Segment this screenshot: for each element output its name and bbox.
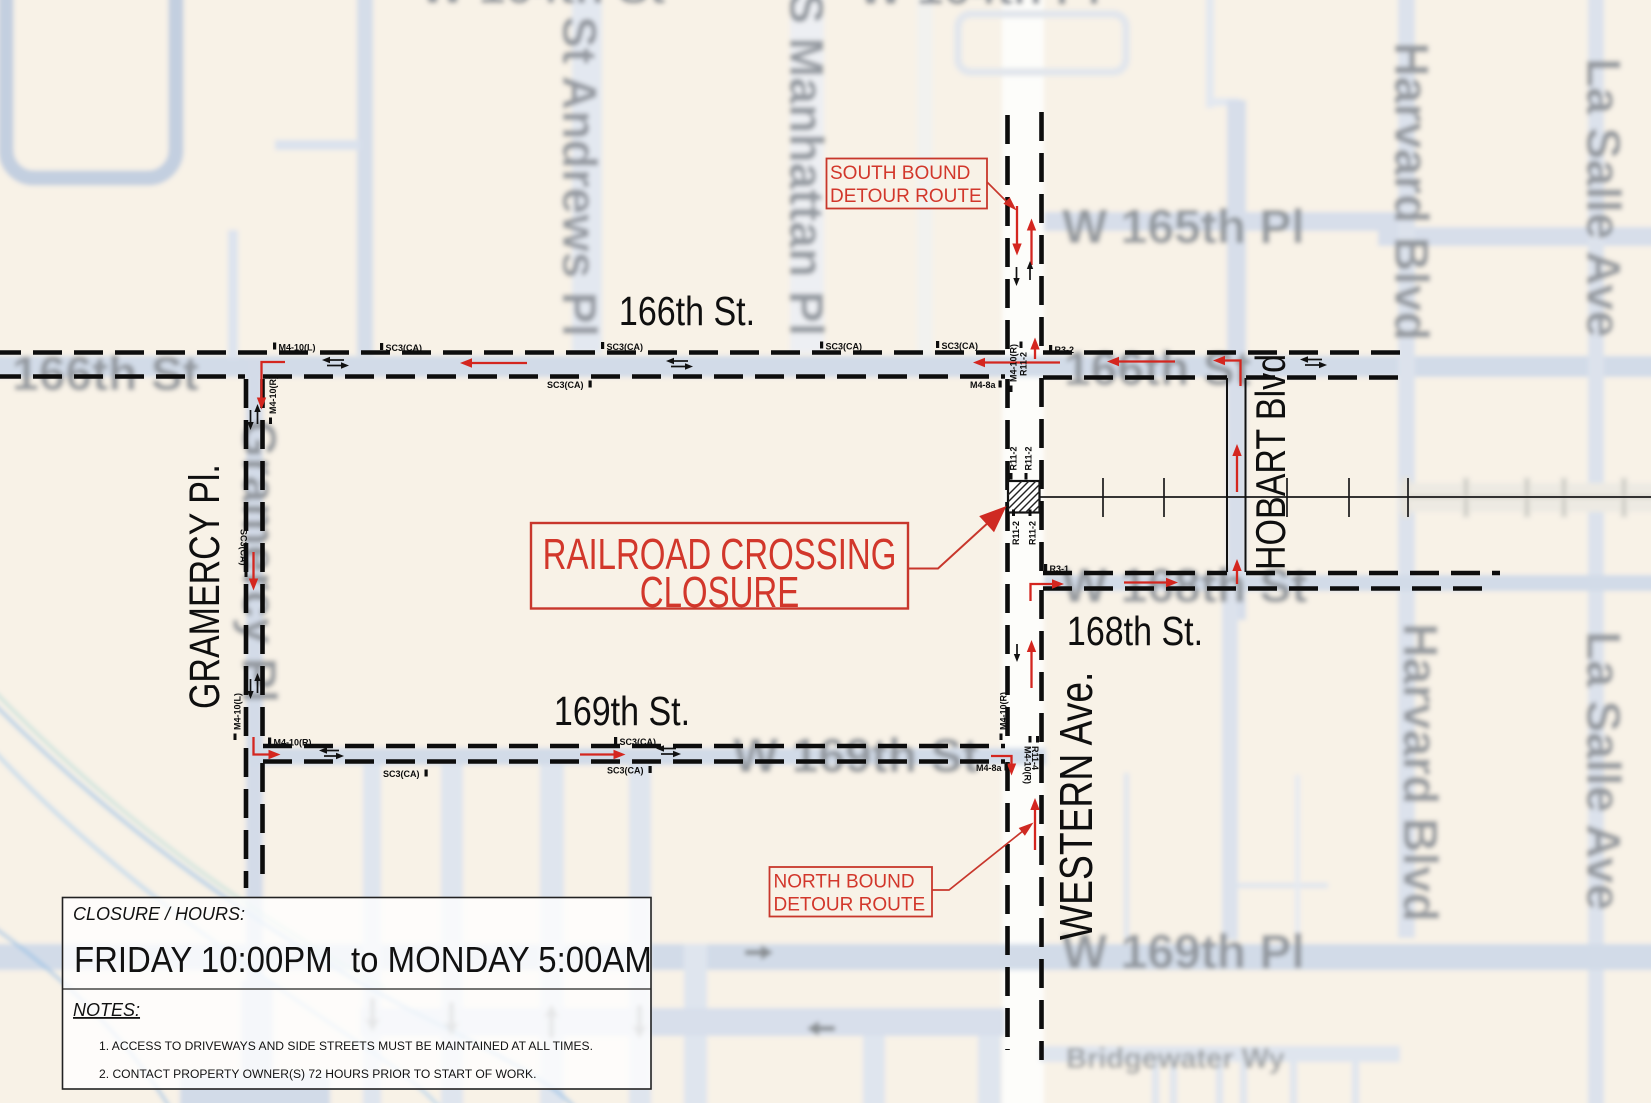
svg-text:168th St.: 168th St. — [1067, 608, 1203, 654]
svg-text:R11-2: R11-2 — [1024, 446, 1034, 470]
svg-text:GRAMERCY Pl.: GRAMERCY Pl. — [181, 464, 228, 709]
svg-text:SC3(CA): SC3(CA) — [383, 769, 420, 779]
svg-text:Harvard Blvd: Harvard Blvd — [1393, 623, 1446, 922]
svg-text:La Salle Ave: La Salle Ave — [1576, 631, 1629, 910]
svg-text:HOBART Blvd: HOBART Blvd — [1248, 354, 1295, 570]
svg-text:CLOSURE: CLOSURE — [640, 569, 799, 618]
svg-text:W 169th St: W 169th St — [733, 730, 978, 783]
svg-text:Harvard Blvd: Harvard Blvd — [1384, 42, 1437, 341]
svg-text:Bridgewater Wy: Bridgewater Wy — [1066, 1043, 1285, 1075]
svg-text:SC3(CA): SC3(CA) — [547, 380, 584, 390]
svg-text:166th St.: 166th St. — [619, 288, 755, 334]
svg-text:M4-8a: M4-8a — [970, 380, 997, 390]
svg-text:1. ACCESS TO DRIVEWAYS AND SID: 1. ACCESS TO DRIVEWAYS AND SIDE STREETS … — [99, 1039, 593, 1053]
svg-text:SC3(CA): SC3(CA) — [239, 529, 249, 566]
svg-text:SC3(CA): SC3(CA) — [942, 341, 979, 351]
svg-text:M4-10(L): M4-10(L) — [233, 693, 243, 730]
svg-text:SOUTH BOUND: SOUTH BOUND — [830, 163, 970, 184]
svg-text:SC3(CA): SC3(CA) — [607, 342, 644, 352]
svg-text:DETOUR ROUTE: DETOUR ROUTE — [830, 186, 982, 207]
svg-text:R11-2: R11-2 — [1028, 521, 1038, 545]
svg-text:S Manhattan Pl: S Manhattan Pl — [779, 0, 832, 336]
svg-text:M4-10(R): M4-10(R) — [268, 376, 278, 414]
svg-text:R11-4: R11-4 — [1030, 746, 1040, 770]
svg-text:R11-2: R11-2 — [1011, 521, 1021, 545]
svg-text:W 164th St: W 164th St — [420, 0, 665, 14]
svg-text:St Andrews Pl: St Andrews Pl — [552, 16, 605, 337]
svg-text:M4-10(R): M4-10(R) — [999, 692, 1009, 730]
svg-text:R3-2: R3-2 — [1055, 345, 1075, 355]
svg-text:M4-10(L): M4-10(L) — [279, 343, 316, 353]
svg-text:2. CONTACT PROPERTY OWNER(S) 7: 2. CONTACT PROPERTY OWNER(S) 72 HOURS PR… — [99, 1067, 536, 1081]
svg-text:SC3(CA): SC3(CA) — [620, 737, 657, 747]
svg-text:SC3(CA): SC3(CA) — [826, 342, 863, 352]
svg-text:DETOUR ROUTE: DETOUR ROUTE — [774, 895, 926, 916]
svg-text:La Salle Ave: La Salle Ave — [1576, 58, 1629, 337]
svg-text:M4-10(R): M4-10(R) — [274, 738, 312, 748]
svg-text:WESTERN Ave.: WESTERN Ave. — [1050, 672, 1102, 940]
svg-text:SC3(CA): SC3(CA) — [607, 766, 644, 776]
svg-text:W 165th Pl: W 165th Pl — [1062, 201, 1305, 254]
svg-text:NOTES:: NOTES: — [73, 1000, 140, 1020]
svg-text:NORTH BOUND: NORTH BOUND — [774, 872, 915, 893]
svg-text:M4-8a: M4-8a — [976, 763, 1003, 773]
svg-text:169th St.: 169th St. — [554, 688, 690, 734]
svg-text:W 164th Pl: W 164th Pl — [858, 0, 1101, 15]
svg-text:CLOSURE / HOURS:: CLOSURE / HOURS: — [73, 904, 245, 924]
svg-text:M4-10(R): M4-10(R) — [1009, 344, 1019, 382]
svg-text:SC3(CA): SC3(CA) — [386, 343, 423, 353]
svg-text:R11-2: R11-2 — [1009, 446, 1019, 470]
svg-text:R3-1: R3-1 — [1050, 564, 1070, 574]
svg-text:R11-2: R11-2 — [1019, 352, 1029, 376]
svg-text:FRIDAY 10:00PM to MONDAY 5:00: FRIDAY 10:00PM to MONDAY 5:00AM — [74, 941, 652, 981]
